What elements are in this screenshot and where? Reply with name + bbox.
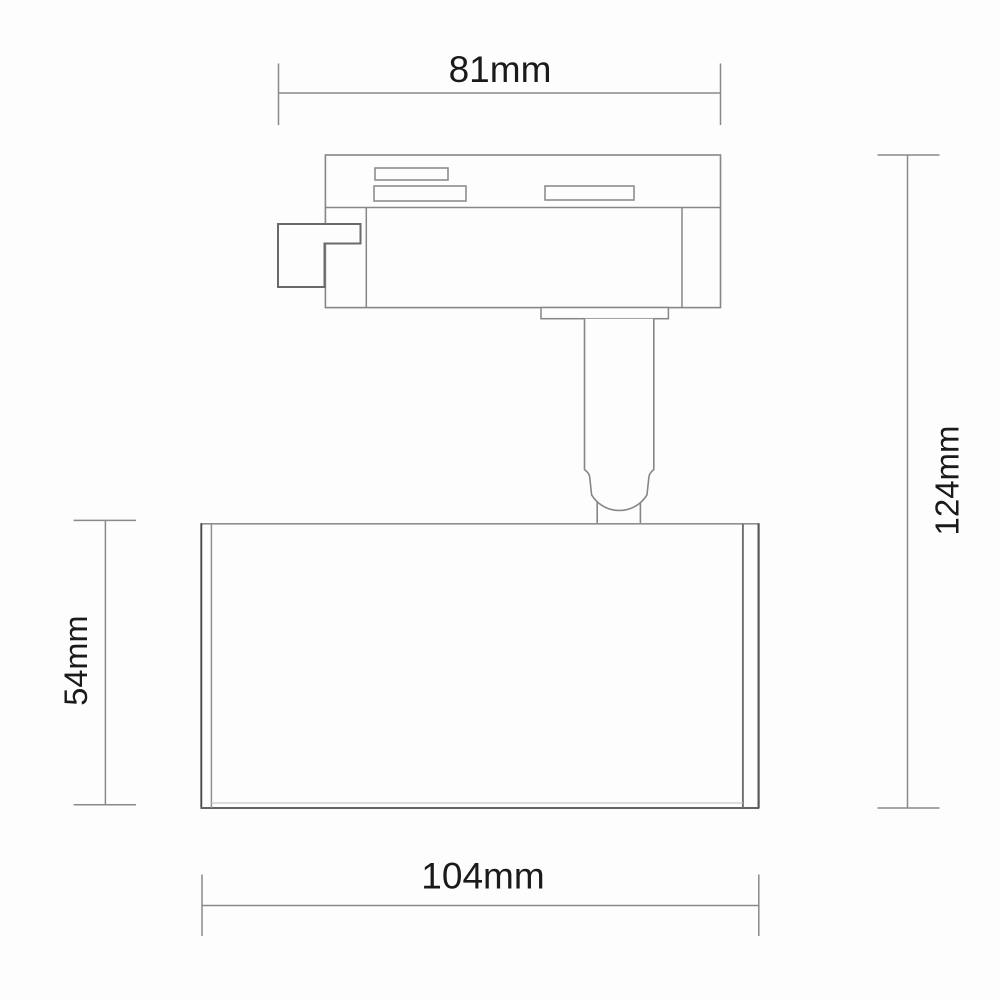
svg-text:81mm: 81mm [449,49,552,90]
svg-text:104mm: 104mm [421,856,544,897]
svg-text:54mm: 54mm [58,615,94,705]
svg-text:124mm: 124mm [929,425,966,535]
